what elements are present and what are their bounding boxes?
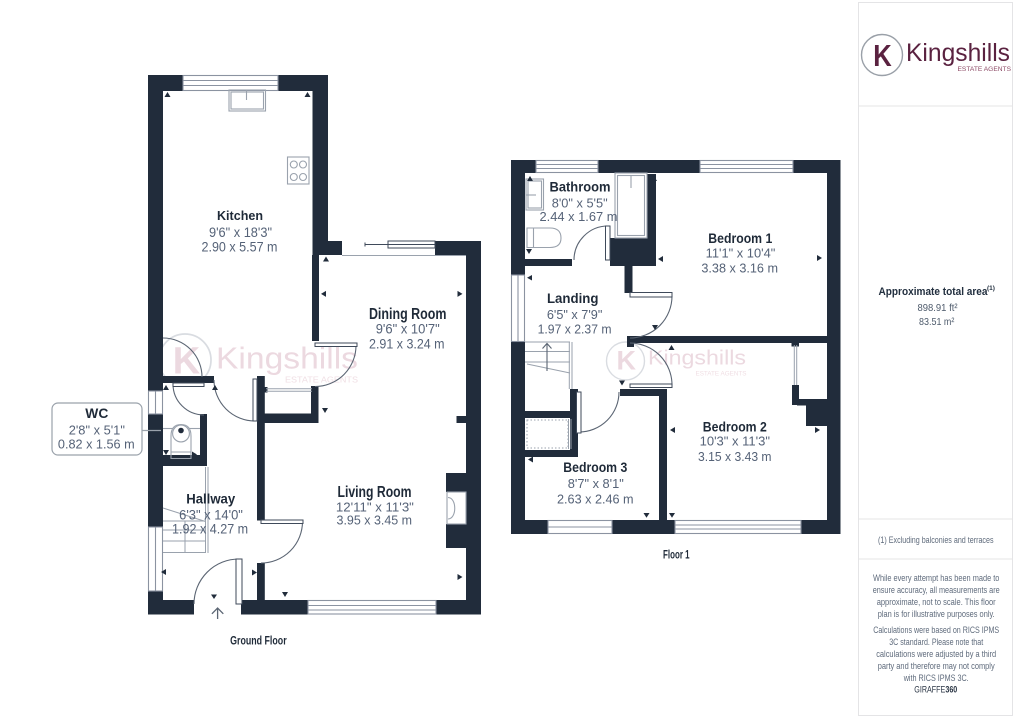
- svg-text:Bedroom 2: Bedroom 2: [703, 419, 767, 435]
- svg-text:10'3" x 11'3": 10'3" x 11'3": [700, 434, 771, 449]
- svg-text:Kingshills: Kingshills: [906, 39, 1010, 67]
- svg-text:2'8" x 5'1": 2'8" x 5'1": [69, 423, 126, 438]
- svg-text:Living Room: Living Room: [338, 484, 412, 501]
- svg-text:2.63 x 2.46 m: 2.63 x 2.46 m: [557, 492, 634, 507]
- svg-text:calculations were adjusted by: calculations were adjusted by a third: [876, 649, 996, 659]
- svg-text:ESTATE AGENTS: ESTATE AGENTS: [285, 375, 358, 385]
- svg-text:Dining Room: Dining Room: [369, 306, 447, 323]
- svg-text:Floor 1: Floor 1: [663, 548, 690, 562]
- svg-text:Landing: Landing: [547, 290, 599, 306]
- svg-text:WC: WC: [85, 406, 108, 421]
- svg-text:GIRAFFE360: GIRAFFE360: [914, 685, 957, 696]
- svg-text:Bedroom 3: Bedroom 3: [563, 459, 627, 475]
- svg-text:Bathroom: Bathroom: [550, 178, 611, 194]
- svg-text:9'6" x 10'7": 9'6" x 10'7": [376, 322, 440, 337]
- svg-text:party and therefore may not co: party and therefore may not comply: [878, 661, 995, 671]
- svg-text:Kitchen: Kitchen: [217, 209, 263, 223]
- svg-text:Ground Floor: Ground Floor: [230, 633, 287, 647]
- svg-text:3.95 x 3.45 m: 3.95 x 3.45 m: [337, 513, 413, 528]
- svg-text:(1): (1): [987, 285, 995, 292]
- svg-text:8'7" x 8'1": 8'7" x 8'1": [568, 476, 624, 491]
- svg-text:9'6" x 18'3": 9'6" x 18'3": [209, 225, 272, 240]
- svg-text:6'5" x 7'9": 6'5" x 7'9": [547, 307, 603, 322]
- svg-text:approximate, not to scale. Thi: approximate, not to scale. This floor: [877, 597, 996, 607]
- svg-text:11'1" x 10'4": 11'1" x 10'4": [706, 246, 776, 261]
- svg-text:K: K: [617, 346, 637, 376]
- svg-text:Calculations were based on RIC: Calculations were based on RICS IPMS: [873, 625, 999, 635]
- svg-text:2.91 x 3.24 m: 2.91 x 3.24 m: [369, 337, 445, 352]
- svg-text:3.15 x 3.43 m: 3.15 x 3.43 m: [698, 449, 772, 464]
- svg-text:Approximate total area: Approximate total area: [879, 286, 989, 298]
- svg-text:K: K: [873, 38, 892, 73]
- svg-text:1.92 x 4.27 m: 1.92 x 4.27 m: [172, 522, 248, 537]
- svg-text:898.91 ft²: 898.91 ft²: [918, 303, 959, 314]
- svg-text:3.38 x 3.16 m: 3.38 x 3.16 m: [701, 261, 778, 276]
- svg-text:Hallway: Hallway: [186, 491, 235, 506]
- svg-text:6'3" x 14'0": 6'3" x 14'0": [179, 508, 243, 523]
- svg-text:(1) Excluding balconies and te: (1) Excluding balconies and terraces: [878, 535, 994, 545]
- svg-text:83.51 m²: 83.51 m²: [919, 317, 955, 328]
- svg-text:ESTATE AGENTS: ESTATE AGENTS: [696, 371, 747, 377]
- svg-text:1.97 x 2.37 m: 1.97 x 2.37 m: [538, 321, 612, 336]
- svg-text:3C standard. Please note that: 3C standard. Please note that: [889, 637, 983, 647]
- svg-text:with RICS IPMS 3C.: with RICS IPMS 3C.: [903, 673, 969, 683]
- svg-text:While every attempt has been m: While every attempt has been made to: [873, 573, 999, 583]
- svg-text:2.90 x 5.57 m: 2.90 x 5.57 m: [202, 240, 278, 255]
- svg-text:plan is for illustrative purpo: plan is for illustrative purposes only.: [878, 609, 995, 619]
- svg-text:ESTATE AGENTS: ESTATE AGENTS: [958, 66, 1012, 73]
- svg-text:Bedroom 1: Bedroom 1: [708, 230, 772, 246]
- svg-text:2.44 x 1.67 m: 2.44 x 1.67 m: [540, 209, 618, 224]
- svg-text:0.82 x 1.56 m: 0.82 x 1.56 m: [58, 437, 135, 452]
- svg-text:ensure accuracy, all measureme: ensure accuracy, all measurements are: [873, 585, 1000, 595]
